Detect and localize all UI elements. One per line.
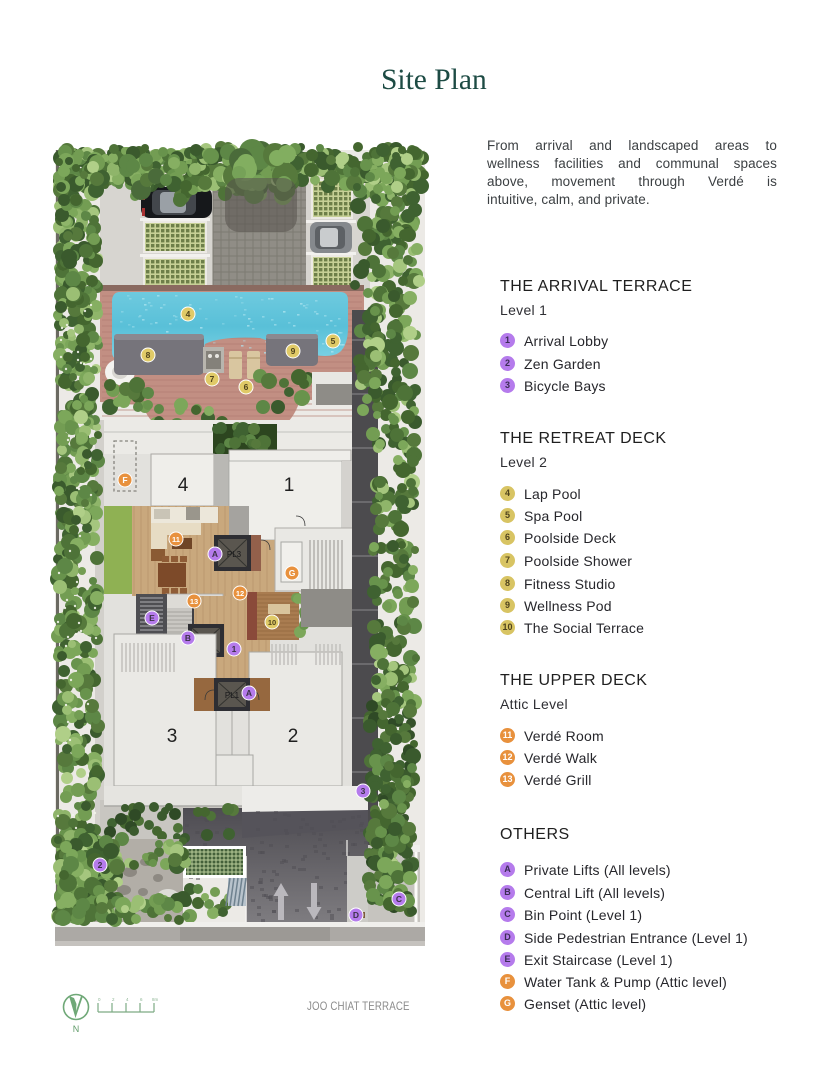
svg-text:F: F — [122, 475, 127, 485]
svg-text:4: 4 — [178, 475, 189, 496]
svg-text:B: B — [185, 633, 191, 643]
svg-text:8m: 8m — [152, 997, 159, 1002]
svg-text:0: 0 — [98, 997, 101, 1002]
svg-text:6: 6 — [140, 997, 143, 1002]
svg-text:5: 5 — [331, 336, 336, 346]
svg-text:G: G — [289, 568, 296, 578]
svg-text:E: E — [149, 613, 155, 623]
svg-text:7: 7 — [210, 374, 215, 384]
svg-text:2: 2 — [98, 860, 103, 870]
svg-text:11: 11 — [172, 535, 180, 544]
svg-text:13: 13 — [190, 597, 198, 606]
svg-text:10: 10 — [268, 618, 276, 627]
svg-text:A: A — [212, 549, 218, 559]
svg-text:C: C — [396, 894, 402, 904]
svg-text:2: 2 — [288, 726, 299, 747]
svg-text:2: 2 — [112, 997, 115, 1002]
svg-text:1: 1 — [232, 644, 237, 654]
svg-text:N: N — [73, 1024, 80, 1034]
svg-text:3: 3 — [361, 786, 366, 796]
svg-text:1: 1 — [284, 475, 295, 496]
svg-text:3: 3 — [167, 726, 178, 747]
svg-text:4: 4 — [186, 309, 191, 319]
svg-text:9: 9 — [291, 346, 296, 356]
svg-text:12: 12 — [236, 589, 244, 598]
svg-text:4: 4 — [126, 997, 129, 1002]
svg-text:6: 6 — [244, 382, 249, 392]
svg-text:PL1: PL1 — [225, 691, 240, 700]
svg-text:A: A — [246, 688, 252, 698]
svg-text:8: 8 — [146, 350, 151, 360]
svg-text:PL3: PL3 — [227, 550, 242, 559]
svg-text:D: D — [353, 910, 359, 920]
